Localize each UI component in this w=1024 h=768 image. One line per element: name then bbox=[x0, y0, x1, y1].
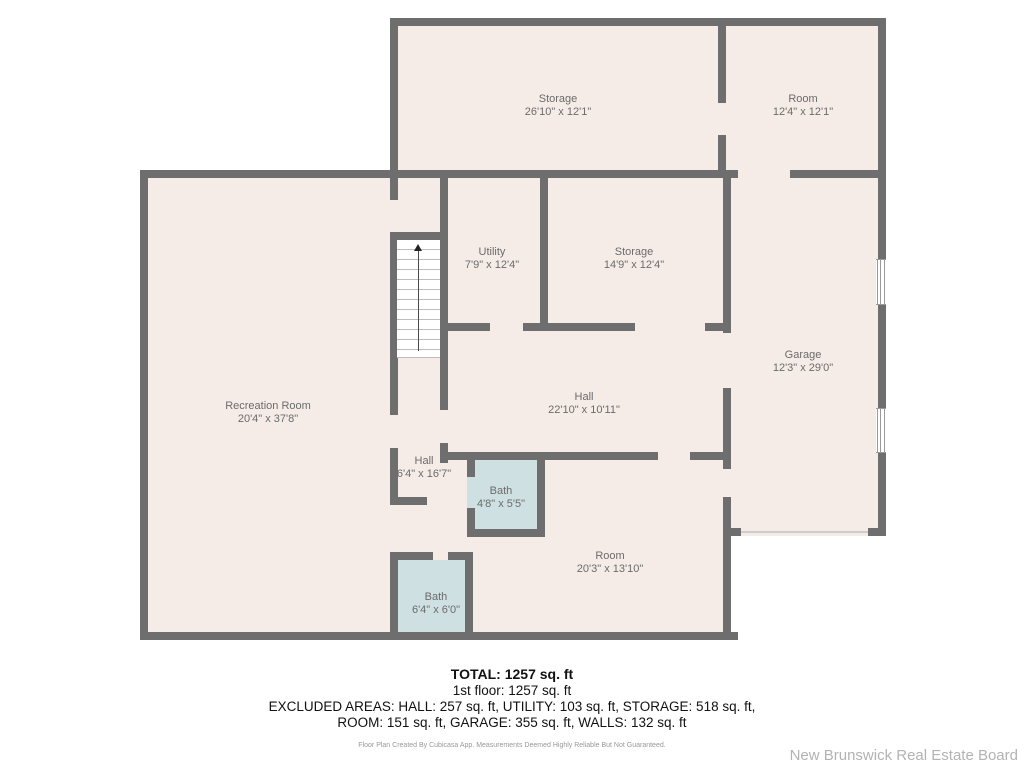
room-dims: 7'9" x 12'4" bbox=[465, 259, 519, 272]
wall bbox=[390, 357, 398, 415]
summary-excluded-line2: ROOM: 151 sq. ft, GARAGE: 355 sq. ft, WA… bbox=[0, 715, 1024, 731]
wall bbox=[540, 178, 548, 331]
room-label-room-bottom: Room 20'3" x 13'10" bbox=[577, 550, 643, 576]
room-dims: 22'10" x 10'11" bbox=[548, 404, 620, 417]
room-name: Hall bbox=[397, 455, 451, 468]
watermark-text: New Brunswick Real Estate Board bbox=[790, 747, 1018, 764]
wall bbox=[443, 452, 658, 460]
staircase bbox=[397, 240, 440, 358]
wall bbox=[790, 170, 886, 178]
wall bbox=[523, 323, 635, 331]
wall bbox=[390, 497, 427, 505]
wall bbox=[723, 388, 731, 469]
room-dims: 12'4" x 12'1" bbox=[773, 106, 833, 119]
room-dims: 14'9" x 12'4" bbox=[604, 259, 664, 272]
room-name: Hall bbox=[548, 391, 620, 404]
room-label-garage: Garage 12'3" x 29'0" bbox=[773, 349, 833, 375]
wall bbox=[723, 178, 731, 333]
wall bbox=[390, 232, 447, 240]
room-name: Garage bbox=[773, 349, 833, 362]
wall bbox=[465, 552, 473, 632]
wall bbox=[140, 170, 738, 178]
room-label-bath-small: Bath 4'8" x 5'5" bbox=[477, 485, 525, 511]
window-icon bbox=[876, 259, 886, 305]
room-dims: 20'3" x 13'10" bbox=[577, 563, 643, 576]
room-label-room-top: Room 12'4" x 12'1" bbox=[773, 93, 833, 119]
room-name: Storage bbox=[604, 246, 664, 259]
room-dims: 4'8" x 5'5" bbox=[477, 498, 525, 511]
wall bbox=[140, 170, 148, 640]
wall bbox=[723, 497, 731, 640]
wall bbox=[390, 552, 398, 640]
wall bbox=[390, 18, 398, 178]
room-dims: 26'10" x 12'1" bbox=[525, 106, 591, 119]
wall bbox=[467, 529, 545, 537]
room-dims: 20'4" x 37'8" bbox=[225, 413, 311, 426]
garage-door-opening bbox=[741, 531, 868, 533]
stairs-up-arrow-icon bbox=[414, 244, 422, 251]
room-label-hall-main: Hall 22'10" x 10'11" bbox=[548, 391, 620, 417]
wall bbox=[390, 18, 886, 26]
stairs-direction-line bbox=[418, 250, 419, 351]
room-label-storage-top: Storage 26'10" x 12'1" bbox=[525, 93, 591, 119]
room-name: Recreation Room bbox=[225, 400, 311, 413]
wall bbox=[718, 26, 726, 103]
room-name: Room bbox=[773, 93, 833, 106]
room-dims: 6'4" x 6'0" bbox=[412, 604, 460, 617]
room-name: Bath bbox=[412, 591, 460, 604]
wall bbox=[705, 323, 731, 331]
room-dims: 12'3" x 29'0" bbox=[773, 362, 833, 375]
wall bbox=[443, 323, 490, 331]
wall bbox=[467, 460, 475, 477]
summary-total: TOTAL: 1257 sq. ft bbox=[0, 666, 1024, 683]
summary-first-floor: 1st floor: 1257 sq. ft bbox=[0, 683, 1024, 699]
wall bbox=[868, 528, 886, 536]
floorplan-canvas: Storage 26'10" x 12'1" Room 12'4" x 12'1… bbox=[0, 0, 1024, 768]
room-label-storage-mid: Storage 14'9" x 12'4" bbox=[604, 246, 664, 272]
summary-excluded-line1: EXCLUDED AREAS: HALL: 257 sq. ft, UTILIT… bbox=[0, 699, 1024, 715]
wall bbox=[690, 452, 723, 460]
room-label-hall-small: Hall 6'4" x 16'7" bbox=[397, 455, 451, 481]
room-name: Storage bbox=[525, 93, 591, 106]
wall bbox=[390, 170, 398, 200]
room-name: Bath bbox=[477, 485, 525, 498]
room-name: Utility bbox=[465, 246, 519, 259]
wall bbox=[723, 528, 741, 536]
room-name: Room bbox=[577, 550, 643, 563]
wall bbox=[440, 178, 448, 410]
area-summary: TOTAL: 1257 sq. ft 1st floor: 1257 sq. f… bbox=[0, 666, 1024, 750]
room-dims: 6'4" x 16'7" bbox=[397, 468, 451, 481]
window-icon bbox=[876, 408, 886, 453]
wall bbox=[537, 452, 545, 537]
room-label-recreation-room: Recreation Room 20'4" x 37'8" bbox=[225, 400, 311, 426]
room-label-bath-bottom: Bath 6'4" x 6'0" bbox=[412, 591, 460, 617]
wall bbox=[140, 632, 738, 640]
room-label-utility: Utility 7'9" x 12'4" bbox=[465, 246, 519, 272]
wall bbox=[467, 508, 475, 537]
wall bbox=[390, 552, 433, 560]
